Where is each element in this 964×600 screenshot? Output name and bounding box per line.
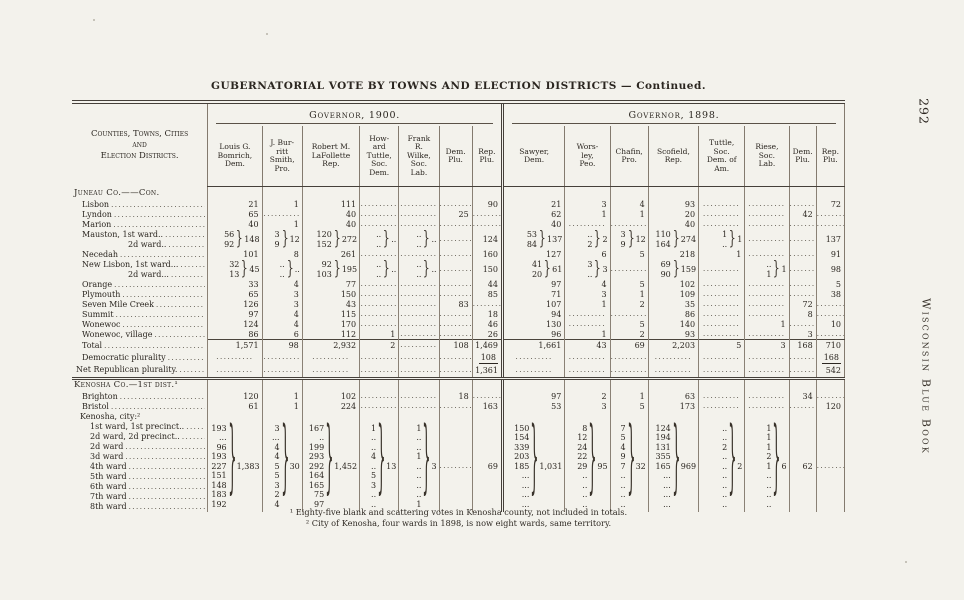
candidate-column-header: Louis G. Bomrich, Dem. bbox=[208, 126, 262, 187]
ward-value: 92 bbox=[224, 240, 234, 250]
value-cell: 137 bbox=[816, 230, 844, 250]
value-cell: 97 bbox=[502, 280, 564, 290]
brace-cell: ....2............}2 bbox=[699, 424, 744, 510]
brace-glyph: } bbox=[594, 260, 600, 279]
ward-value: 1 bbox=[416, 452, 421, 462]
brace-glyph: } bbox=[589, 427, 596, 507]
brace-group-cell: ....2............}2 bbox=[699, 422, 745, 512]
value-cell bbox=[565, 412, 610, 422]
ward-values: 5692 bbox=[224, 230, 234, 249]
value-cell: .......... bbox=[565, 364, 610, 379]
candidate-column-header: Sawyer, Dem. bbox=[502, 126, 564, 187]
value-cell: .......... bbox=[789, 220, 816, 230]
brace-glyph: } bbox=[334, 230, 340, 249]
value-cell: 5 bbox=[816, 280, 844, 290]
ward-value: 41 bbox=[532, 260, 542, 270]
page-number: 292 bbox=[917, 95, 932, 129]
ward-value: ... bbox=[655, 471, 670, 481]
value-cell: .......... bbox=[789, 402, 816, 412]
brace-total: .. bbox=[431, 235, 436, 244]
row-label: 6th ward................................… bbox=[72, 482, 208, 492]
value-cell: 163 bbox=[472, 402, 502, 412]
row-label-flex: 2d ward.................................… bbox=[72, 270, 207, 280]
row-label-text: Net Republican plurality. bbox=[76, 365, 177, 374]
row-label: Democratic plurality....................… bbox=[72, 352, 208, 364]
ward-value: 150 bbox=[514, 424, 529, 434]
brace-glyph: } bbox=[673, 260, 679, 279]
value-cell: 98 bbox=[816, 260, 844, 280]
ward-value: 9 bbox=[275, 240, 280, 250]
row-label-text: New Lisbon, 1st ward... bbox=[82, 260, 178, 269]
value-cell: .......... bbox=[262, 352, 302, 364]
candidate-column-header: J. Bur- ritt Smith, Pro. bbox=[262, 126, 302, 187]
ward-value: ... bbox=[514, 490, 529, 500]
value-cell: 8 bbox=[789, 310, 816, 320]
table-row: Necedah.................................… bbox=[72, 250, 845, 260]
brace-group-cell: 3213}45 bbox=[208, 260, 262, 280]
value-cell: .......... bbox=[472, 392, 502, 402]
brace-glyph: } bbox=[383, 230, 389, 249]
value-cell: 124 bbox=[472, 230, 502, 250]
leader-dots: ........................................… bbox=[182, 433, 205, 442]
value-cell: .......... bbox=[789, 230, 816, 250]
value-cell: .......... bbox=[208, 364, 262, 379]
table-row: Marion..................................… bbox=[72, 220, 845, 230]
brace-cell: 1....1........1}3 bbox=[399, 424, 438, 510]
brace-glyph: } bbox=[325, 427, 332, 507]
ward-value: ... bbox=[272, 433, 280, 443]
brace-group-cell: 1..}1 bbox=[699, 230, 745, 250]
value-cell bbox=[399, 187, 439, 200]
row-label: 2d ward.................................… bbox=[72, 240, 208, 250]
value-cell: .......... bbox=[439, 422, 472, 512]
row-label-flex: Marion..................................… bbox=[72, 220, 207, 230]
row-label-flex: Wonewoc.................................… bbox=[72, 320, 207, 330]
ward-value: 8 bbox=[577, 424, 587, 434]
row-label-flex: Democratic plurality....................… bbox=[72, 353, 207, 363]
brace-cell: 5384}137 bbox=[504, 230, 564, 249]
brace-total: 12 bbox=[290, 235, 300, 244]
leader-dots: ........................................… bbox=[186, 423, 205, 432]
row-label-flex: Plymouth................................… bbox=[72, 290, 207, 300]
ward-values: 167..1992932921641657597 bbox=[309, 424, 324, 510]
ward-values: 5384 bbox=[527, 230, 537, 249]
brace-cell: ....}.. bbox=[263, 260, 302, 279]
value-cell: 1,661 bbox=[502, 340, 564, 352]
value-cell bbox=[208, 379, 262, 392]
value-cell: .......... bbox=[789, 260, 816, 280]
value-cell: .......... bbox=[439, 364, 472, 379]
value-cell: .......... bbox=[472, 210, 502, 220]
ward-value: 1 bbox=[371, 424, 376, 434]
brace-glyph: } bbox=[594, 230, 600, 249]
value-cell: .......... bbox=[399, 300, 439, 310]
ward-values: ....2............ bbox=[722, 424, 727, 510]
ward-value: 24 bbox=[577, 443, 587, 453]
ward-value: 1 bbox=[766, 462, 771, 472]
brace-cell: ..1}1 bbox=[745, 260, 788, 279]
value-cell: 40 bbox=[648, 220, 698, 230]
ward-values: 11121........ bbox=[766, 424, 771, 510]
value-cell: .......... bbox=[745, 300, 789, 310]
brace-glyph: } bbox=[531, 427, 538, 507]
brace-glyph: } bbox=[729, 230, 735, 249]
brace-total: 61 bbox=[552, 265, 562, 274]
ward-value: ... bbox=[211, 433, 226, 443]
value-cell: .......... bbox=[610, 260, 648, 280]
value-cell: 6 bbox=[565, 250, 610, 260]
value-cell bbox=[565, 379, 610, 392]
table-row: Orange..................................… bbox=[72, 280, 845, 290]
brace-total: .. bbox=[391, 235, 396, 244]
value-cell: 3 bbox=[789, 330, 816, 340]
row-label-text: 3d ward bbox=[90, 452, 123, 461]
ward-value: 90 bbox=[661, 270, 671, 280]
value-cell bbox=[648, 187, 698, 200]
value-cell: .......... bbox=[745, 352, 789, 364]
ward-value: 2 bbox=[587, 240, 592, 250]
value-cell: .......... bbox=[360, 200, 399, 210]
value-cell: 1 bbox=[610, 392, 648, 402]
brace-group-cell: ..2}2 bbox=[565, 230, 610, 250]
ward-value: 4 bbox=[620, 443, 625, 453]
value-cell: 4 bbox=[610, 200, 648, 210]
value-cell: .......... bbox=[502, 352, 564, 364]
value-cell: .......... bbox=[262, 210, 302, 220]
value-cell: 108 bbox=[472, 352, 502, 364]
row-label-flex: Seven Mile Creek........................… bbox=[72, 300, 207, 310]
value-cell: 21 bbox=[502, 200, 564, 210]
ward-value: 183 bbox=[211, 490, 226, 500]
value-cell: .......... bbox=[399, 392, 439, 402]
value-cell: 101 bbox=[208, 250, 262, 260]
paper-speck bbox=[266, 33, 268, 35]
leader-dots: ........................................… bbox=[114, 281, 205, 290]
value-cell: 40 bbox=[208, 220, 262, 230]
value-cell: 1 bbox=[565, 210, 610, 220]
row-label-flex: Mauston, 1st ward.......................… bbox=[72, 230, 207, 240]
row-label-flex: New Lisbon, 1st ward....................… bbox=[72, 260, 207, 270]
ward-value: .. bbox=[416, 433, 421, 443]
brace-total: 159 bbox=[681, 265, 696, 274]
value-cell: 1 bbox=[360, 330, 399, 340]
leader-dots: ........................................… bbox=[165, 231, 205, 240]
stub-header-text: Counties, Towns, Cities and Election Dis… bbox=[72, 129, 207, 162]
value-cell: 69 bbox=[472, 422, 502, 512]
value-cell: .......... bbox=[360, 402, 399, 412]
value-cell bbox=[502, 379, 564, 392]
value-cell bbox=[262, 187, 302, 200]
value-cell: .......... bbox=[699, 364, 745, 379]
value-cell: 130 bbox=[502, 320, 564, 330]
leader-dots: ........................................… bbox=[111, 201, 205, 210]
brace-group-cell: 92103}195 bbox=[302, 260, 359, 280]
value-cell bbox=[648, 379, 698, 392]
value-cell: 102 bbox=[302, 392, 359, 402]
table-row: Total...................................… bbox=[72, 340, 845, 352]
row-label-text: Wonewoc, village bbox=[82, 330, 152, 339]
ward-value: 293 bbox=[309, 452, 324, 462]
book-title-vertical: Wisconsin Blue Book bbox=[920, 273, 933, 481]
value-cell: 1 bbox=[745, 320, 789, 330]
ward-value: .. bbox=[577, 490, 587, 500]
ward-value: 148 bbox=[211, 481, 226, 491]
value-cell bbox=[262, 412, 302, 422]
value-cell bbox=[439, 379, 472, 392]
table-row: Kenosha, city:² bbox=[72, 412, 845, 422]
value-cell bbox=[472, 379, 502, 392]
row-label: 3d ward.................................… bbox=[72, 452, 208, 462]
row-label: Juneau Co.——Con. bbox=[72, 187, 208, 200]
ward-value: 3 bbox=[272, 481, 280, 491]
row-label-flex: 2d ward, 2d precinct....................… bbox=[72, 432, 207, 442]
value-cell: .......... bbox=[439, 260, 472, 280]
brace-group-cell: 1....1........1}3 bbox=[399, 422, 439, 512]
value-cell bbox=[399, 412, 439, 422]
value-cell: 40 bbox=[302, 220, 359, 230]
value-cell: 26 bbox=[472, 330, 502, 340]
brace-cell: 92103}195 bbox=[303, 260, 359, 279]
brace-total: 274 bbox=[681, 235, 696, 244]
ward-value: 120 bbox=[317, 230, 332, 240]
row-label-flex: Bristol.................................… bbox=[72, 402, 207, 412]
row-label-flex: 1st ward, 1st precinct..................… bbox=[72, 422, 207, 432]
value-cell: 86 bbox=[648, 310, 698, 320]
value-cell: 1,469 bbox=[472, 340, 502, 352]
value-cell: 18 bbox=[472, 310, 502, 320]
value-cell: .......... bbox=[745, 250, 789, 260]
value-cell: 97 bbox=[208, 310, 262, 320]
ward-value: .. bbox=[722, 462, 727, 472]
brace-glyph: } bbox=[334, 260, 340, 279]
brace-group-cell: 150154339203185............}1,031 bbox=[502, 422, 564, 512]
value-cell: 20 bbox=[648, 210, 698, 220]
row-label-flex: 2d ward.................................… bbox=[72, 240, 207, 250]
value-cell: .......... bbox=[789, 200, 816, 210]
row-label-text: Plymouth bbox=[82, 290, 120, 299]
brace-group-cell: 3..}3 bbox=[565, 260, 610, 280]
leader-dots: ........................................… bbox=[179, 366, 205, 375]
value-cell: .......... bbox=[439, 280, 472, 290]
table-row: Mauston, 1st ward.......................… bbox=[72, 230, 845, 240]
brace-cell: ....}.. bbox=[399, 260, 438, 279]
row-label-flex: Brighton................................… bbox=[72, 392, 207, 402]
value-cell: 3 bbox=[262, 300, 302, 310]
brace-cell: 120152}272 bbox=[303, 230, 359, 249]
value-cell bbox=[472, 412, 502, 422]
leader-dots: ........................................… bbox=[129, 463, 206, 472]
brace-total: 30 bbox=[290, 462, 300, 471]
value-cell: 3 bbox=[262, 290, 302, 300]
value-cell: 90 bbox=[472, 200, 502, 210]
row-label-text: Kenosha, city:² bbox=[72, 412, 140, 421]
ward-value: 164 bbox=[655, 240, 670, 250]
brace-total: .. bbox=[391, 265, 396, 274]
ward-value: .. bbox=[620, 481, 625, 491]
brace-total: 3 bbox=[602, 265, 607, 274]
brace-glyph: } bbox=[627, 427, 634, 507]
value-cell: 2,932 bbox=[302, 340, 359, 352]
row-label: Orange..................................… bbox=[72, 280, 208, 290]
value-cell: .......... bbox=[360, 280, 399, 290]
brace-total: .. bbox=[431, 265, 436, 274]
ward-value: .. bbox=[587, 230, 592, 240]
leader-dots: ........................................… bbox=[156, 301, 205, 310]
value-cell: 107 bbox=[502, 300, 564, 310]
ward-value: .. bbox=[416, 481, 421, 491]
candidate-column-header: Rep. Plu. bbox=[472, 126, 502, 187]
brace-cell: ....}.. bbox=[399, 230, 438, 249]
ward-value: .. bbox=[309, 433, 324, 443]
row-label: Bristol.................................… bbox=[72, 402, 208, 412]
ward-value: 69 bbox=[661, 260, 671, 270]
table-row: Plymouth................................… bbox=[72, 290, 845, 300]
brace-cell: 167..1992932921641657597}1,452 bbox=[303, 424, 359, 510]
brace-group-cell: 167..1992932921641657597}1,452 bbox=[302, 422, 359, 512]
ward-value: 7 bbox=[620, 424, 625, 434]
ward-value: 75 bbox=[309, 490, 324, 500]
row-label: Plymouth................................… bbox=[72, 290, 208, 300]
ward-values: 4120 bbox=[532, 260, 542, 279]
value-cell: 4 bbox=[262, 320, 302, 330]
ward-value: 13 bbox=[229, 270, 239, 280]
ward-value: 5 bbox=[620, 433, 625, 443]
leader-dots: ........................................… bbox=[129, 483, 206, 492]
value-cell bbox=[789, 412, 816, 422]
table-row: Bristol.................................… bbox=[72, 402, 845, 412]
vote-table: Counties, Towns, Cities and Election Dis… bbox=[72, 100, 845, 512]
brace-glyph: } bbox=[728, 427, 735, 507]
ward-value: .. bbox=[371, 490, 376, 500]
brace-group-cell: 5692}148 bbox=[208, 230, 262, 250]
value-cell bbox=[360, 187, 399, 200]
value-cell: .......... bbox=[565, 310, 610, 320]
table-row: New Lisbon, 1st ward....................… bbox=[72, 260, 845, 270]
value-cell: 5 bbox=[610, 280, 648, 290]
row-label-flex: Necedah.................................… bbox=[72, 250, 207, 260]
value-cell: 112 bbox=[302, 330, 359, 340]
value-cell: .......... bbox=[816, 300, 844, 310]
value-cell: .......... bbox=[610, 364, 648, 379]
brace-total: 32 bbox=[636, 462, 646, 471]
subtraction-value: 108 bbox=[479, 353, 498, 364]
value-cell: 72 bbox=[816, 200, 844, 210]
ward-values: 1....1........1 bbox=[416, 424, 421, 510]
leader-dots: ........................................… bbox=[180, 261, 205, 270]
value-cell: 94 bbox=[502, 310, 564, 320]
row-label-flex: Orange..................................… bbox=[72, 280, 207, 290]
value-cell: 1 bbox=[699, 250, 745, 260]
value-cell: .......... bbox=[360, 210, 399, 220]
ward-value: 56 bbox=[224, 230, 234, 240]
row-label-text: 6th ward bbox=[90, 482, 127, 491]
row-label: Net Republican plurality................… bbox=[72, 364, 208, 379]
candidate-column-header: Chafin, Pro. bbox=[610, 126, 648, 187]
row-label: 2d ward.................................… bbox=[72, 270, 208, 280]
row-label-flex: Wonewoc, village........................… bbox=[72, 330, 207, 340]
value-cell: 86 bbox=[208, 330, 262, 340]
row-label-flex: 2d ward.................................… bbox=[72, 442, 207, 452]
table-row: Democratic plurality....................… bbox=[72, 352, 845, 364]
ward-value: .. bbox=[766, 471, 771, 481]
value-cell bbox=[699, 187, 745, 200]
table-body: Juneau Co.——Con.Lisbon..................… bbox=[72, 187, 845, 512]
brace-group-cell: 39}12 bbox=[262, 230, 302, 250]
value-cell: 43 bbox=[565, 340, 610, 352]
ward-value: 103 bbox=[317, 270, 332, 280]
candidate-column-header: Dem. Plu. bbox=[439, 126, 472, 187]
leader-dots: ........................................… bbox=[168, 241, 205, 250]
ward-value: .. bbox=[416, 230, 421, 240]
value-cell: 72 bbox=[789, 300, 816, 310]
brace-group-cell: 11121........}6 bbox=[745, 422, 789, 512]
leader-dots: ........................................… bbox=[168, 354, 206, 363]
value-cell: .......... bbox=[360, 310, 399, 320]
value-cell: 1 bbox=[610, 210, 648, 220]
value-cell: 108 bbox=[439, 340, 472, 352]
ward-values: 1.. bbox=[722, 230, 727, 249]
value-cell: 43 bbox=[302, 300, 359, 310]
table-row: 1st ward, 1st precinct..................… bbox=[72, 422, 845, 432]
value-cell: .......... bbox=[399, 364, 439, 379]
value-cell: 2 bbox=[360, 340, 399, 352]
ward-value: .. bbox=[416, 462, 421, 472]
brace-glyph: } bbox=[383, 260, 389, 279]
row-label: New Lisbon, 1st ward....................… bbox=[72, 260, 208, 270]
brace-glyph: } bbox=[236, 230, 242, 249]
value-cell: .......... bbox=[699, 280, 745, 290]
value-cell: 25 bbox=[439, 210, 472, 220]
value-cell: 98 bbox=[262, 340, 302, 352]
page-title: GUBERNATORIAL VOTE BY TOWNS AND ELECTION… bbox=[72, 80, 845, 92]
brace-cell: ..2}2 bbox=[565, 230, 609, 249]
ward-value: 32 bbox=[229, 260, 239, 270]
value-cell bbox=[610, 379, 648, 392]
row-label-flex: 4th ward................................… bbox=[72, 462, 207, 472]
ward-value: .. bbox=[722, 471, 727, 481]
value-cell bbox=[439, 187, 472, 200]
value-cell: .......... bbox=[745, 280, 789, 290]
table-row: Lisbon..................................… bbox=[72, 200, 845, 210]
value-cell: 8 bbox=[262, 250, 302, 260]
value-cell: 3 bbox=[565, 402, 610, 412]
ward-value: .. bbox=[766, 481, 771, 491]
ward-values: 1....4..53.... bbox=[371, 424, 376, 510]
ward-values: 3...4455324 bbox=[272, 424, 280, 510]
table-row: Brighton................................… bbox=[72, 392, 845, 402]
value-cell: .......... bbox=[302, 352, 359, 364]
brace-cell: 124194131355165............}969 bbox=[649, 424, 698, 510]
table-row: Summit..................................… bbox=[72, 310, 845, 320]
value-cell: 1,361 bbox=[472, 364, 502, 379]
value-cell: .......... bbox=[745, 200, 789, 210]
value-cell: .......... bbox=[399, 200, 439, 210]
row-label-flex: 3d ward.................................… bbox=[72, 452, 207, 462]
ward-value: 96 bbox=[211, 443, 226, 453]
ward-value: 110 bbox=[655, 230, 670, 240]
value-cell: .......... bbox=[360, 364, 399, 379]
row-label-text: Mauston, 1st ward.. bbox=[82, 230, 163, 239]
value-cell: .......... bbox=[439, 200, 472, 210]
leader-dots: ........................................… bbox=[129, 473, 206, 482]
brace-cell: 75497........}32 bbox=[611, 424, 648, 510]
value-cell: .......... bbox=[439, 230, 472, 250]
value-cell: .......... bbox=[565, 352, 610, 364]
ward-value: .. bbox=[371, 433, 376, 443]
brace-total: 137 bbox=[547, 235, 562, 244]
ward-value: ... bbox=[514, 481, 529, 491]
row-label-flex: Total...................................… bbox=[72, 341, 207, 351]
